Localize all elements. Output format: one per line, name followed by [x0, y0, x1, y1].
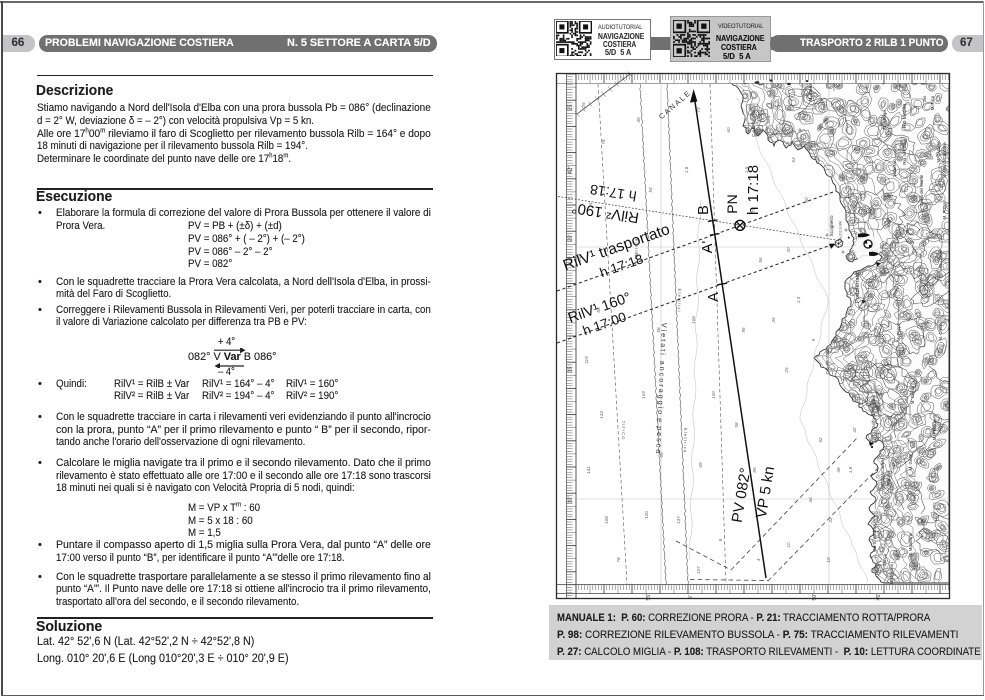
svg-text:Rio nell'Elba: Rio nell'Elba: [902, 139, 907, 165]
svg-text:M. Orello: M. Orello: [938, 250, 943, 268]
svg-text:Scoglietto: Scoglietto: [829, 215, 835, 236]
svg-text:10: 10: [786, 542, 791, 548]
svg-text:52: 52: [818, 437, 823, 443]
svg-text:A': A': [700, 241, 716, 254]
svg-text:A: A: [706, 292, 722, 302]
svg-text:115: 115: [584, 356, 589, 364]
svg-text:106: 106: [691, 316, 696, 324]
svg-text:25': 25': [568, 103, 574, 110]
svg-text:8: 8: [718, 538, 723, 541]
svg-text:4: 4: [756, 558, 761, 561]
svg-text:26: 26: [581, 102, 586, 109]
svg-text:M. Strega: M. Strega: [882, 110, 887, 130]
svg-text:46: 46: [808, 497, 813, 503]
svg-text:108: 108: [604, 516, 609, 524]
svg-text:1,4: 1,4: [796, 296, 801, 303]
svg-text:Golfo di Procchio: Golfo di Procchio: [871, 395, 876, 429]
svg-text:19: 19: [826, 557, 831, 563]
svg-text:M. Giove: M. Giove: [908, 453, 913, 470]
svg-text:Volterraio: Volterraio: [892, 158, 897, 176]
svg-text:M. Poppe: M. Poppe: [896, 322, 901, 341]
svg-text:32: 32: [828, 517, 833, 523]
svg-text:78: 78: [601, 139, 606, 145]
svg-text:9: 9: [811, 338, 816, 341]
svg-text:36: 36: [771, 317, 776, 323]
svg-text:42: 42: [852, 427, 857, 433]
svg-text:10': 10': [568, 496, 574, 503]
svg-text:26: 26: [784, 367, 789, 374]
svg-text:Zanca: Zanca: [882, 554, 887, 566]
svg-text:C.o della Vita: C.o della Vita: [751, 110, 756, 137]
svg-text:58: 58: [656, 327, 661, 333]
svg-text:Rio Marina: Rio Marina: [902, 104, 908, 128]
svg-text:100: 100: [711, 391, 716, 399]
svg-text:M. Orella: M. Orella: [938, 323, 943, 341]
svg-text:M. Mar di Capanne: M. Mar di Capanne: [942, 142, 947, 178]
svg-text:134: 134: [599, 411, 604, 419]
svg-text:15': 15': [568, 365, 574, 372]
svg-text:Marina: Marina: [886, 470, 892, 485]
svg-text:20': 20': [568, 234, 574, 241]
svg-text:56: 56: [758, 257, 763, 263]
svg-text:49: 49: [636, 117, 641, 123]
svg-text:M. Castello: M. Castello: [936, 141, 941, 163]
svg-text:PN: PN: [724, 194, 740, 213]
svg-text:30: 30: [786, 247, 791, 253]
svg-text:54: 54: [648, 187, 653, 193]
svg-text:53: 53: [791, 157, 796, 163]
svg-text:M. Fico: M. Fico: [930, 95, 935, 110]
svg-text:M. Perone: M. Perone: [932, 419, 937, 440]
svg-text:98: 98: [734, 422, 739, 428]
svg-text:95: 95: [741, 327, 746, 333]
svg-text:78: 78: [616, 557, 621, 563]
svg-text:48: 48: [836, 467, 841, 473]
svg-text:h 17:18: h 17:18: [745, 165, 762, 215]
svg-text:C.o d'Enfola: C.o d'Enfola: [825, 349, 830, 374]
svg-text:137: 137: [676, 516, 681, 524]
svg-text:50': 50': [812, 594, 818, 601]
svg-text:Portoferraio: Portoferraio: [855, 273, 861, 303]
svg-text:E l e t t r i c o: E l e t t r i c o: [683, 428, 688, 453]
svg-text:Mortigliano: Mortigliano: [889, 563, 894, 584]
svg-text:103: 103: [641, 391, 646, 399]
svg-text:266: 266: [923, 96, 927, 102]
svg-text:M. Moncione: M. Moncione: [908, 532, 913, 557]
svg-text:Cima del Monte: Cima del Monte: [919, 174, 924, 205]
svg-text:42°: 42°: [568, 166, 574, 174]
svg-text:M. Puccio: M. Puccio: [942, 200, 947, 219]
svg-text:120: 120: [644, 511, 649, 519]
svg-text:lam.(2)10s 8M: lam.(2)10s 8M: [839, 221, 843, 243]
svg-text:141: 141: [586, 466, 591, 474]
svg-text:Marciana: Marciana: [880, 460, 886, 480]
svg-text:1,8: 1,8: [848, 466, 853, 473]
svg-text:60: 60: [726, 127, 731, 133]
svg-text:B: B: [696, 205, 712, 215]
svg-text:107: 107: [696, 566, 701, 574]
svg-text:30,1: 30,1: [766, 115, 771, 124]
svg-text:45': 45': [876, 594, 882, 601]
svg-text:T I F I C O: T I F I C O: [621, 421, 626, 440]
svg-text:1,8: 1,8: [684, 166, 689, 173]
svg-text:69: 69: [698, 462, 703, 468]
svg-text:55': 55': [646, 594, 652, 601]
svg-text:M. Cerola: M. Cerola: [910, 385, 915, 404]
svg-text:95: 95: [659, 452, 664, 458]
svg-text:Ca S. Andrea: Ca S. Andrea: [872, 524, 877, 552]
